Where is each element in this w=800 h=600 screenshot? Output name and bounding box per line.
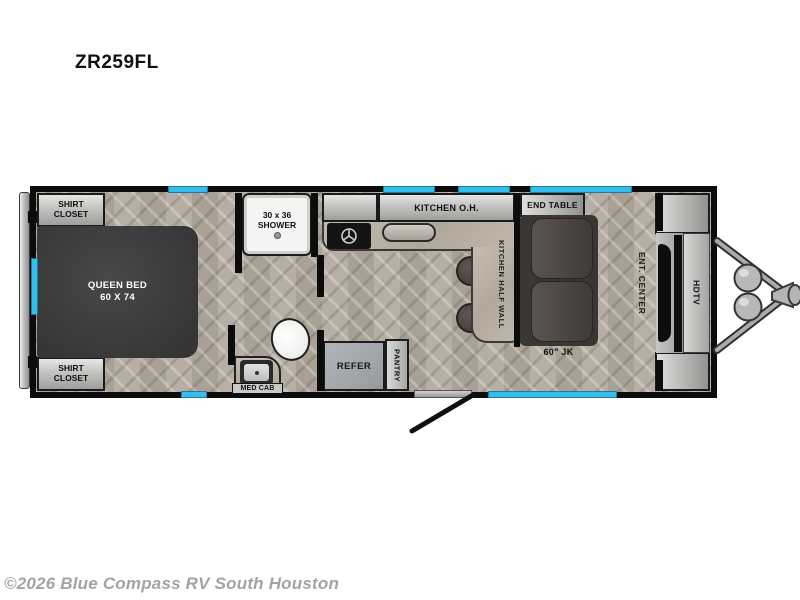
- wall-bath-left: [228, 325, 235, 365]
- sofa-size-text: 60" JK: [543, 347, 573, 357]
- ent-center-cabinet-top: [655, 193, 710, 234]
- cooktop: [327, 223, 371, 249]
- window-marker: [530, 186, 632, 193]
- cap-mount-bottom: [28, 356, 37, 368]
- dealer-copyright-text: ©2026 Blue Compass RV South Houston: [4, 574, 339, 593]
- refer-label: REFER: [337, 361, 371, 372]
- tv-screen: [674, 235, 682, 352]
- ent-center-label: ENT. CENTER: [637, 252, 647, 344]
- shirt-closet-label: SHIRT CLOSET: [49, 200, 93, 220]
- wall-ent-top: [656, 193, 663, 231]
- window-marker: [181, 391, 207, 398]
- kitchen-half-wall-text: KITCHEN HALF WALL: [497, 240, 506, 329]
- window-marker: [383, 186, 435, 193]
- trailer-hitch: [710, 228, 800, 368]
- sofa-size-label: 60" JK: [519, 347, 598, 357]
- pantry-label: PANTRY: [393, 349, 402, 382]
- pantry: PANTRY: [385, 339, 409, 391]
- window-marker: [168, 186, 208, 193]
- kitchen-sink: [382, 223, 436, 242]
- queen-bed-name: QUEEN BED: [88, 280, 147, 292]
- dealer-copyright: ©2026 Blue Compass RV South Houston: [4, 574, 339, 594]
- wall-shower-right: [311, 193, 318, 257]
- med-cab-label: MED CAB: [240, 385, 274, 392]
- model-title: ZR259FL: [75, 52, 159, 74]
- floorplan-image: ZR259FL SHIRT CLOSET SHIRT CLOSET QUEEN …: [0, 0, 800, 600]
- shower-name: SHOWER: [258, 220, 296, 230]
- wall-kitchen-half: [514, 193, 520, 347]
- shower: 30 x 36 SHOWER: [242, 193, 312, 256]
- end-table-label: END TABLE: [527, 200, 578, 210]
- med-cab: MED CAB: [232, 383, 283, 394]
- tv-mount: [658, 244, 671, 342]
- shower-size: 30 x 36: [263, 210, 291, 220]
- shirt-closet-label: SHIRT CLOSET: [49, 364, 93, 384]
- sofa-cushion: [531, 281, 593, 342]
- window-marker: [458, 186, 510, 193]
- end-table: END TABLE: [520, 193, 585, 217]
- bath-sink-basin: [244, 364, 269, 381]
- bath-sink-drain-icon: [255, 371, 259, 375]
- hdtv: HDTV: [683, 233, 710, 353]
- wall-shower-left: [235, 193, 242, 273]
- propane-tanks: [735, 265, 762, 321]
- kitchen-overhead-cabinet: KITCHEN O.H.: [378, 193, 515, 222]
- queen-bed: QUEEN BED 60 X 74: [37, 226, 198, 358]
- kitchen-oh-label: KITCHEN O.H.: [414, 203, 479, 213]
- ent-center-cabinet-bottom: [655, 352, 710, 391]
- window-marker: [31, 258, 38, 315]
- hdtv-label: HDTV: [692, 280, 702, 305]
- shirt-closet-front-top: SHIRT CLOSET: [37, 193, 105, 227]
- queen-bed-size: 60 X 74: [100, 292, 135, 304]
- window-marker: [488, 391, 617, 398]
- cap-mount-top: [28, 211, 37, 223]
- bath-sink: [240, 360, 273, 385]
- stove-overhead-cabinet: [322, 193, 378, 222]
- entry-door-swing: [400, 390, 490, 440]
- wall-bath-right-upper: [317, 255, 324, 297]
- refrigerator: REFER: [323, 341, 385, 391]
- sofa-cushion: [531, 218, 593, 279]
- kitchen-half-wall-label: KITCHEN HALF WALL: [497, 240, 506, 346]
- wall-bath-right-lower: [317, 330, 324, 391]
- jackknife-sofa: [519, 215, 598, 346]
- shower-drain-icon: [274, 232, 281, 239]
- kitchen-peninsula-counter: [471, 247, 515, 343]
- wall-ent-bottom: [656, 360, 663, 391]
- shirt-closet-front-bottom: SHIRT CLOSET: [37, 357, 105, 391]
- ent-center-text: ENT. CENTER: [637, 252, 647, 314]
- stove-burner-icon: [340, 227, 358, 245]
